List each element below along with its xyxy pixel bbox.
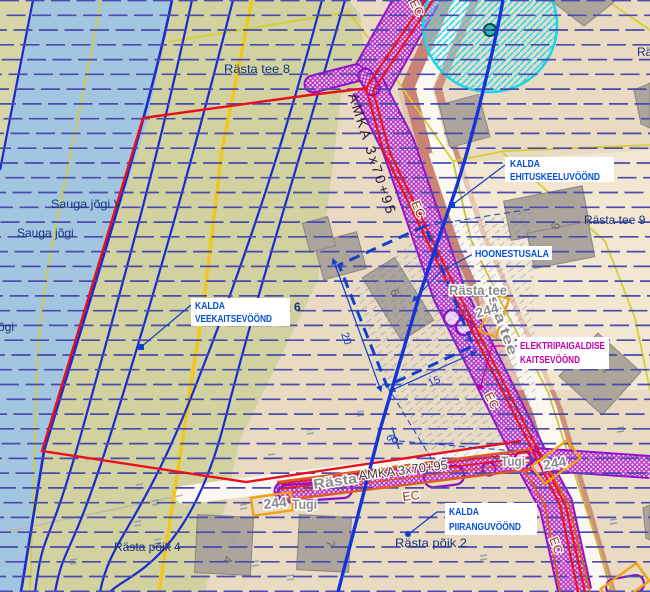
svg-text:KALDA: KALDA	[510, 159, 540, 170]
svg-text:Tugi: Tugi	[501, 453, 525, 469]
svg-text:PIIRANGUVÖÖND: PIIRANGUVÖÖND	[449, 520, 521, 533]
svg-text:Tugi: Tugi	[292, 496, 317, 512]
svg-text:õgi: õgi	[0, 320, 14, 334]
svg-text:Rästa põik 2: Rästa põik 2	[395, 536, 467, 550]
svg-text:Rästa põik 4: Rästa põik 4	[114, 540, 181, 554]
svg-text:Rä: Rä	[637, 45, 650, 59]
svg-text:ELEKTRIPAIGALDISE: ELEKTRIPAIGALDISE	[520, 341, 605, 352]
svg-text:Rästa tee 9: Rästa tee 9	[584, 213, 646, 227]
svg-text:VEEKAITSEVÖÖND: VEEKAITSEVÖÖND	[195, 312, 272, 325]
svg-text:KAITSEVÖÖND: KAITSEVÖÖND	[520, 353, 580, 366]
svg-text:HOONESTUSALA: HOONESTUSALA	[475, 249, 549, 260]
svg-text:Rästa tee 8: Rästa tee 8	[224, 62, 290, 76]
svg-text:244: 244	[263, 494, 288, 512]
svg-text:EHITUSKEELUVÖÖND: EHITUSKEELUVÖÖND	[510, 170, 600, 183]
svg-text:KALDA: KALDA	[449, 507, 479, 518]
svg-text:EC: EC	[402, 488, 421, 504]
svg-text:Sauga jõgi: Sauga jõgi	[17, 226, 74, 240]
svg-text:KALDA: KALDA	[195, 301, 225, 312]
svg-text:Sauga jõgi V: Sauga jõgi V	[51, 197, 122, 211]
